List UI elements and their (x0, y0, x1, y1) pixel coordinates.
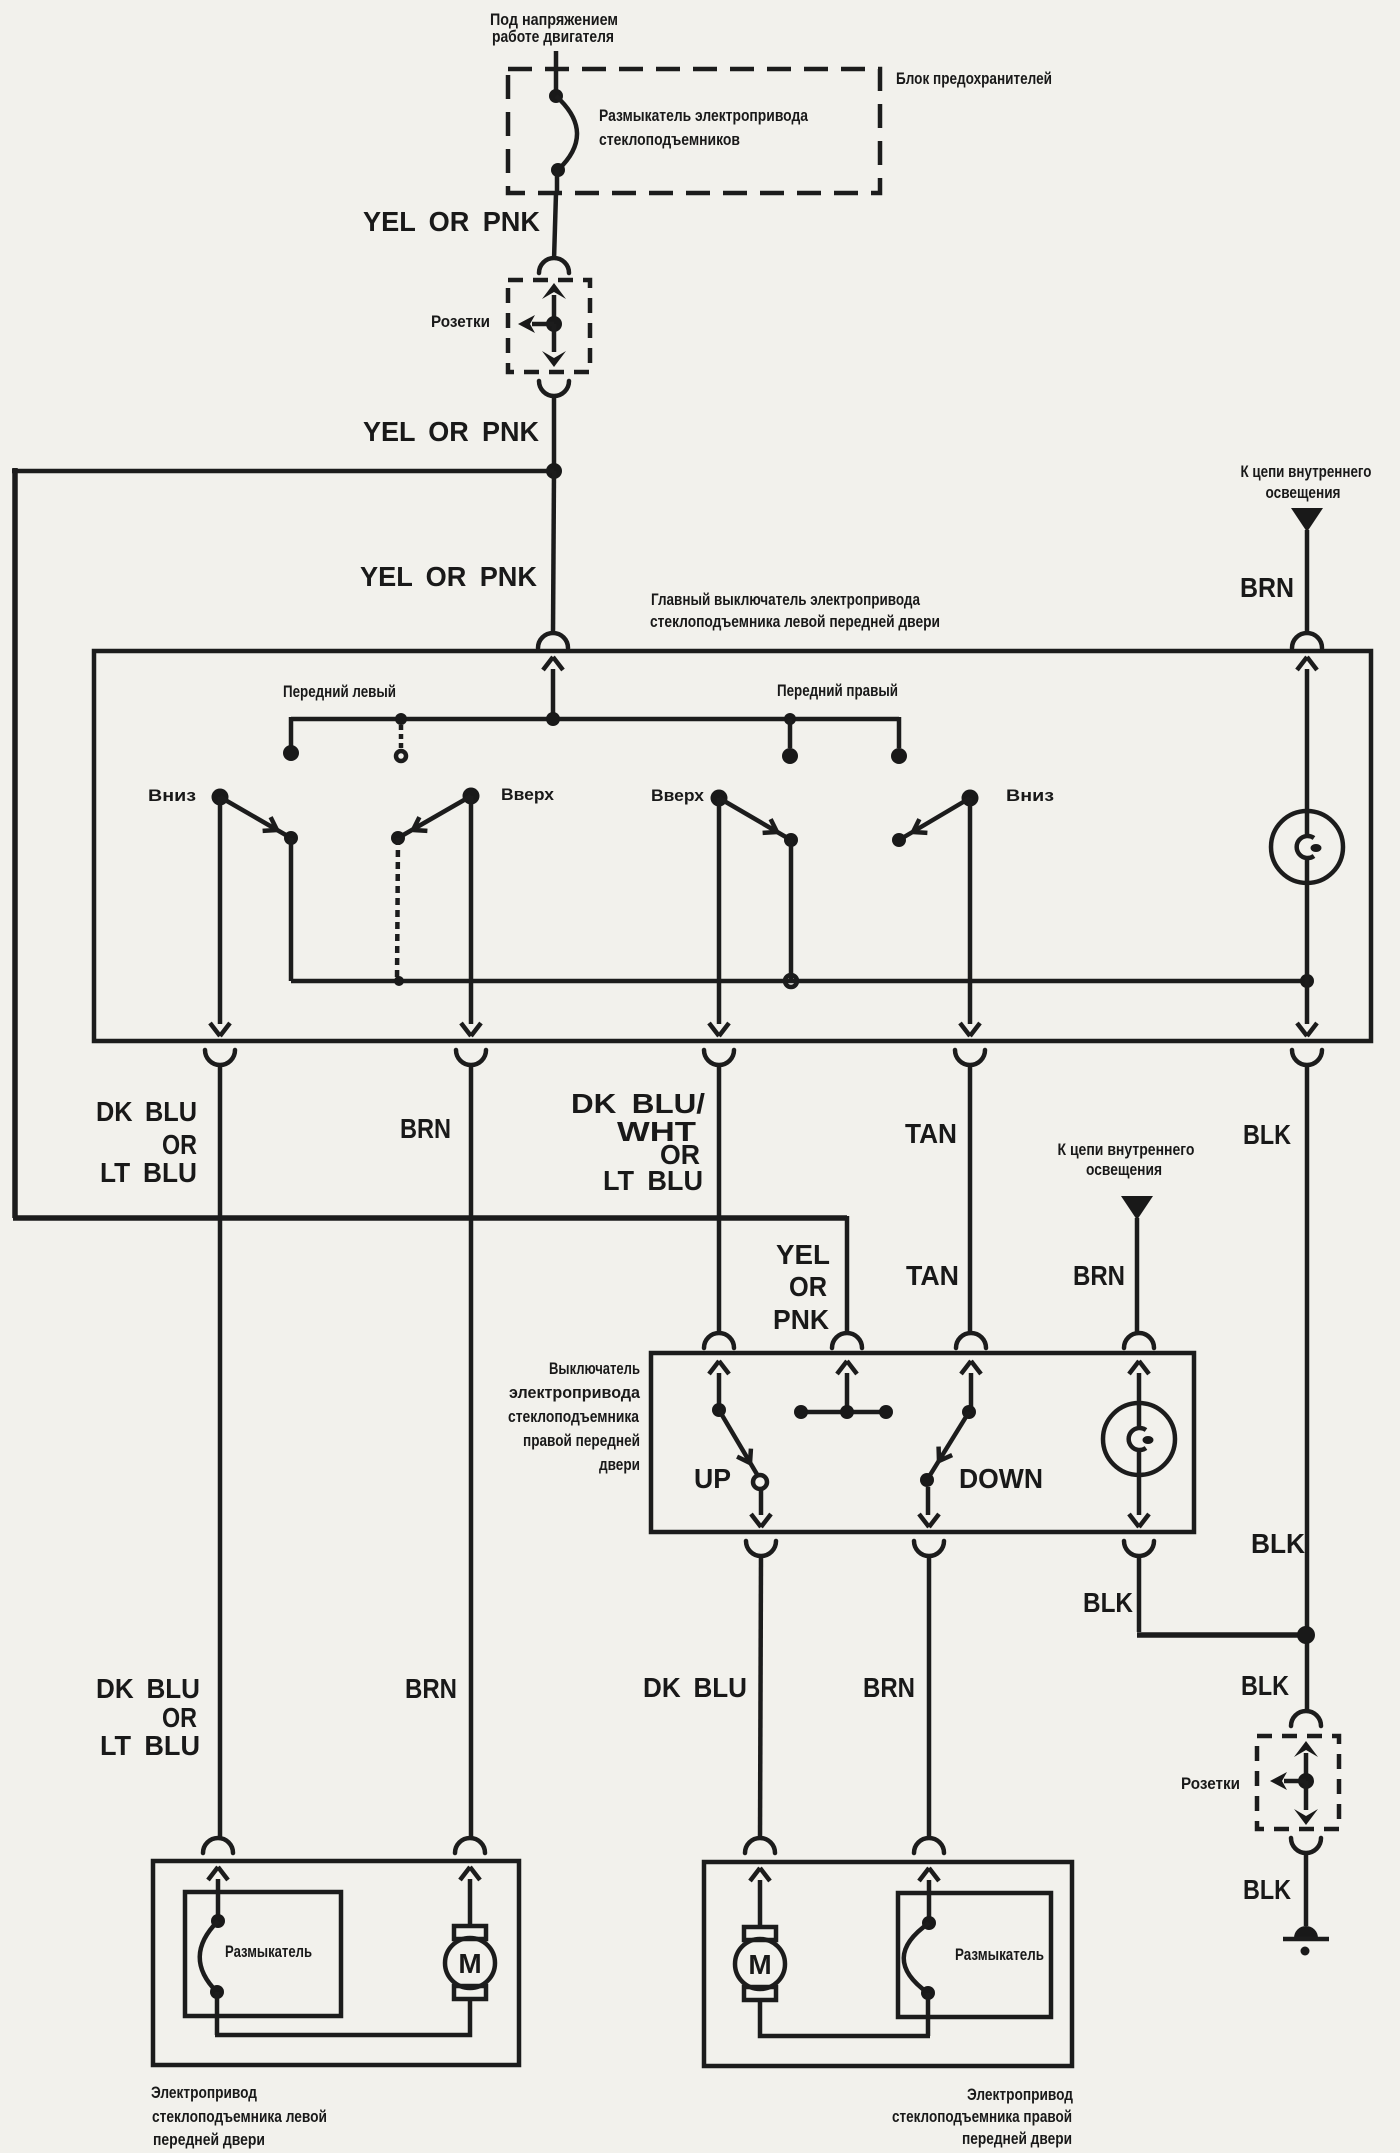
svg-text:BRN: BRN (1240, 572, 1294, 603)
svg-text:BRN: BRN (400, 1113, 451, 1144)
svg-text:LT BLU: LT BLU (603, 1165, 703, 1196)
svg-text:Вниз: Вниз (148, 786, 196, 805)
svg-text:передней двери: передней двери (153, 2130, 265, 2149)
svg-text:TAN: TAN (905, 1118, 957, 1149)
svg-text:Розетки: Розетки (431, 312, 490, 331)
svg-text:LT BLU: LT BLU (100, 1157, 197, 1188)
svg-text:BRN: BRN (863, 1672, 915, 1703)
svg-text:DOWN: DOWN (959, 1463, 1043, 1494)
svg-text:Блок предохранителей: Блок предохранителей (896, 69, 1052, 88)
svg-text:Размыкатель: Размыкатель (225, 1942, 312, 1961)
svg-text:Розетки: Розетки (1181, 1774, 1240, 1793)
svg-text:DK BLU: DK BLU (643, 1672, 747, 1703)
svg-text:Главный выключатель электропри: Главный выключатель электропривода (651, 590, 920, 609)
svg-text:Выключатель: Выключатель (549, 1359, 640, 1378)
svg-text:BLK: BLK (1241, 1670, 1289, 1701)
svg-text:UP: UP (694, 1463, 731, 1494)
svg-text:BLK: BLK (1251, 1528, 1305, 1559)
svg-text:стеклоподъемника левой передне: стеклоподъемника левой передней двери (650, 612, 940, 631)
svg-text:M: M (458, 1948, 481, 1979)
svg-text:YEL OR PNK: YEL OR PNK (360, 561, 537, 592)
svg-text:двери: двери (599, 1455, 640, 1474)
svg-text:Передний левый: Передний левый (283, 682, 396, 701)
svg-text:освещения: освещения (1266, 483, 1341, 502)
svg-text:Передний правый: Передний правый (777, 681, 898, 700)
svg-text:К цепи внутреннего: К цепи внутреннего (1058, 1140, 1195, 1159)
svg-text:электропривода: электропривода (509, 1383, 641, 1402)
svg-text:BRN: BRN (1073, 1260, 1125, 1291)
svg-text:работе двигателя: работе двигателя (492, 27, 614, 46)
svg-text:Размыкатель: Размыкатель (955, 1945, 1044, 1964)
svg-text:Размыкатель электропривода: Размыкатель электропривода (599, 106, 808, 125)
svg-text:M: M (748, 1949, 771, 1980)
svg-text:стеклоподъемников: стеклоподъемников (599, 130, 740, 149)
svg-text:Вверх: Вверх (651, 786, 705, 805)
svg-text:Электропривод: Электропривод (151, 2083, 257, 2102)
svg-text:DK BLU: DK BLU (96, 1673, 200, 1704)
svg-text:передней двери: передней двери (962, 2129, 1072, 2148)
svg-text:DK BLU: DK BLU (96, 1096, 197, 1127)
svg-text:освещения: освещения (1086, 1160, 1162, 1179)
svg-text:OR: OR (789, 1271, 827, 1302)
svg-text:Электропривод: Электропривод (967, 2085, 1073, 2104)
svg-text:BLK: BLK (1083, 1587, 1133, 1618)
svg-text:правой передней: правой передней (523, 1431, 640, 1450)
svg-text:стеклоподъемника левой: стеклоподъемника левой (152, 2107, 327, 2126)
svg-text:YEL OR PNK: YEL OR PNK (363, 416, 539, 447)
svg-text:BRN: BRN (405, 1673, 457, 1704)
svg-text:BLK: BLK (1243, 1119, 1291, 1150)
svg-text:стеклоподъемника: стеклоподъемника (508, 1407, 639, 1426)
svg-text:OR: OR (162, 1702, 197, 1733)
svg-text:К цепи внутреннего: К цепи внутреннего (1241, 462, 1372, 481)
svg-text:OR: OR (162, 1129, 197, 1160)
svg-text:YEL OR PNK: YEL OR PNK (363, 206, 540, 237)
svg-text:BLK: BLK (1243, 1874, 1291, 1905)
svg-text:LT BLU: LT BLU (100, 1730, 200, 1761)
svg-text:Вниз: Вниз (1006, 786, 1054, 805)
svg-text:DK BLU/: DK BLU/ (571, 1088, 705, 1119)
svg-text:Вверх: Вверх (501, 785, 555, 804)
svg-text:стеклоподъемника правой: стеклоподъемника правой (892, 2107, 1072, 2126)
svg-text:PNK: PNK (773, 1304, 829, 1335)
svg-text:TAN: TAN (906, 1260, 959, 1291)
svg-text:YEL: YEL (776, 1239, 830, 1270)
